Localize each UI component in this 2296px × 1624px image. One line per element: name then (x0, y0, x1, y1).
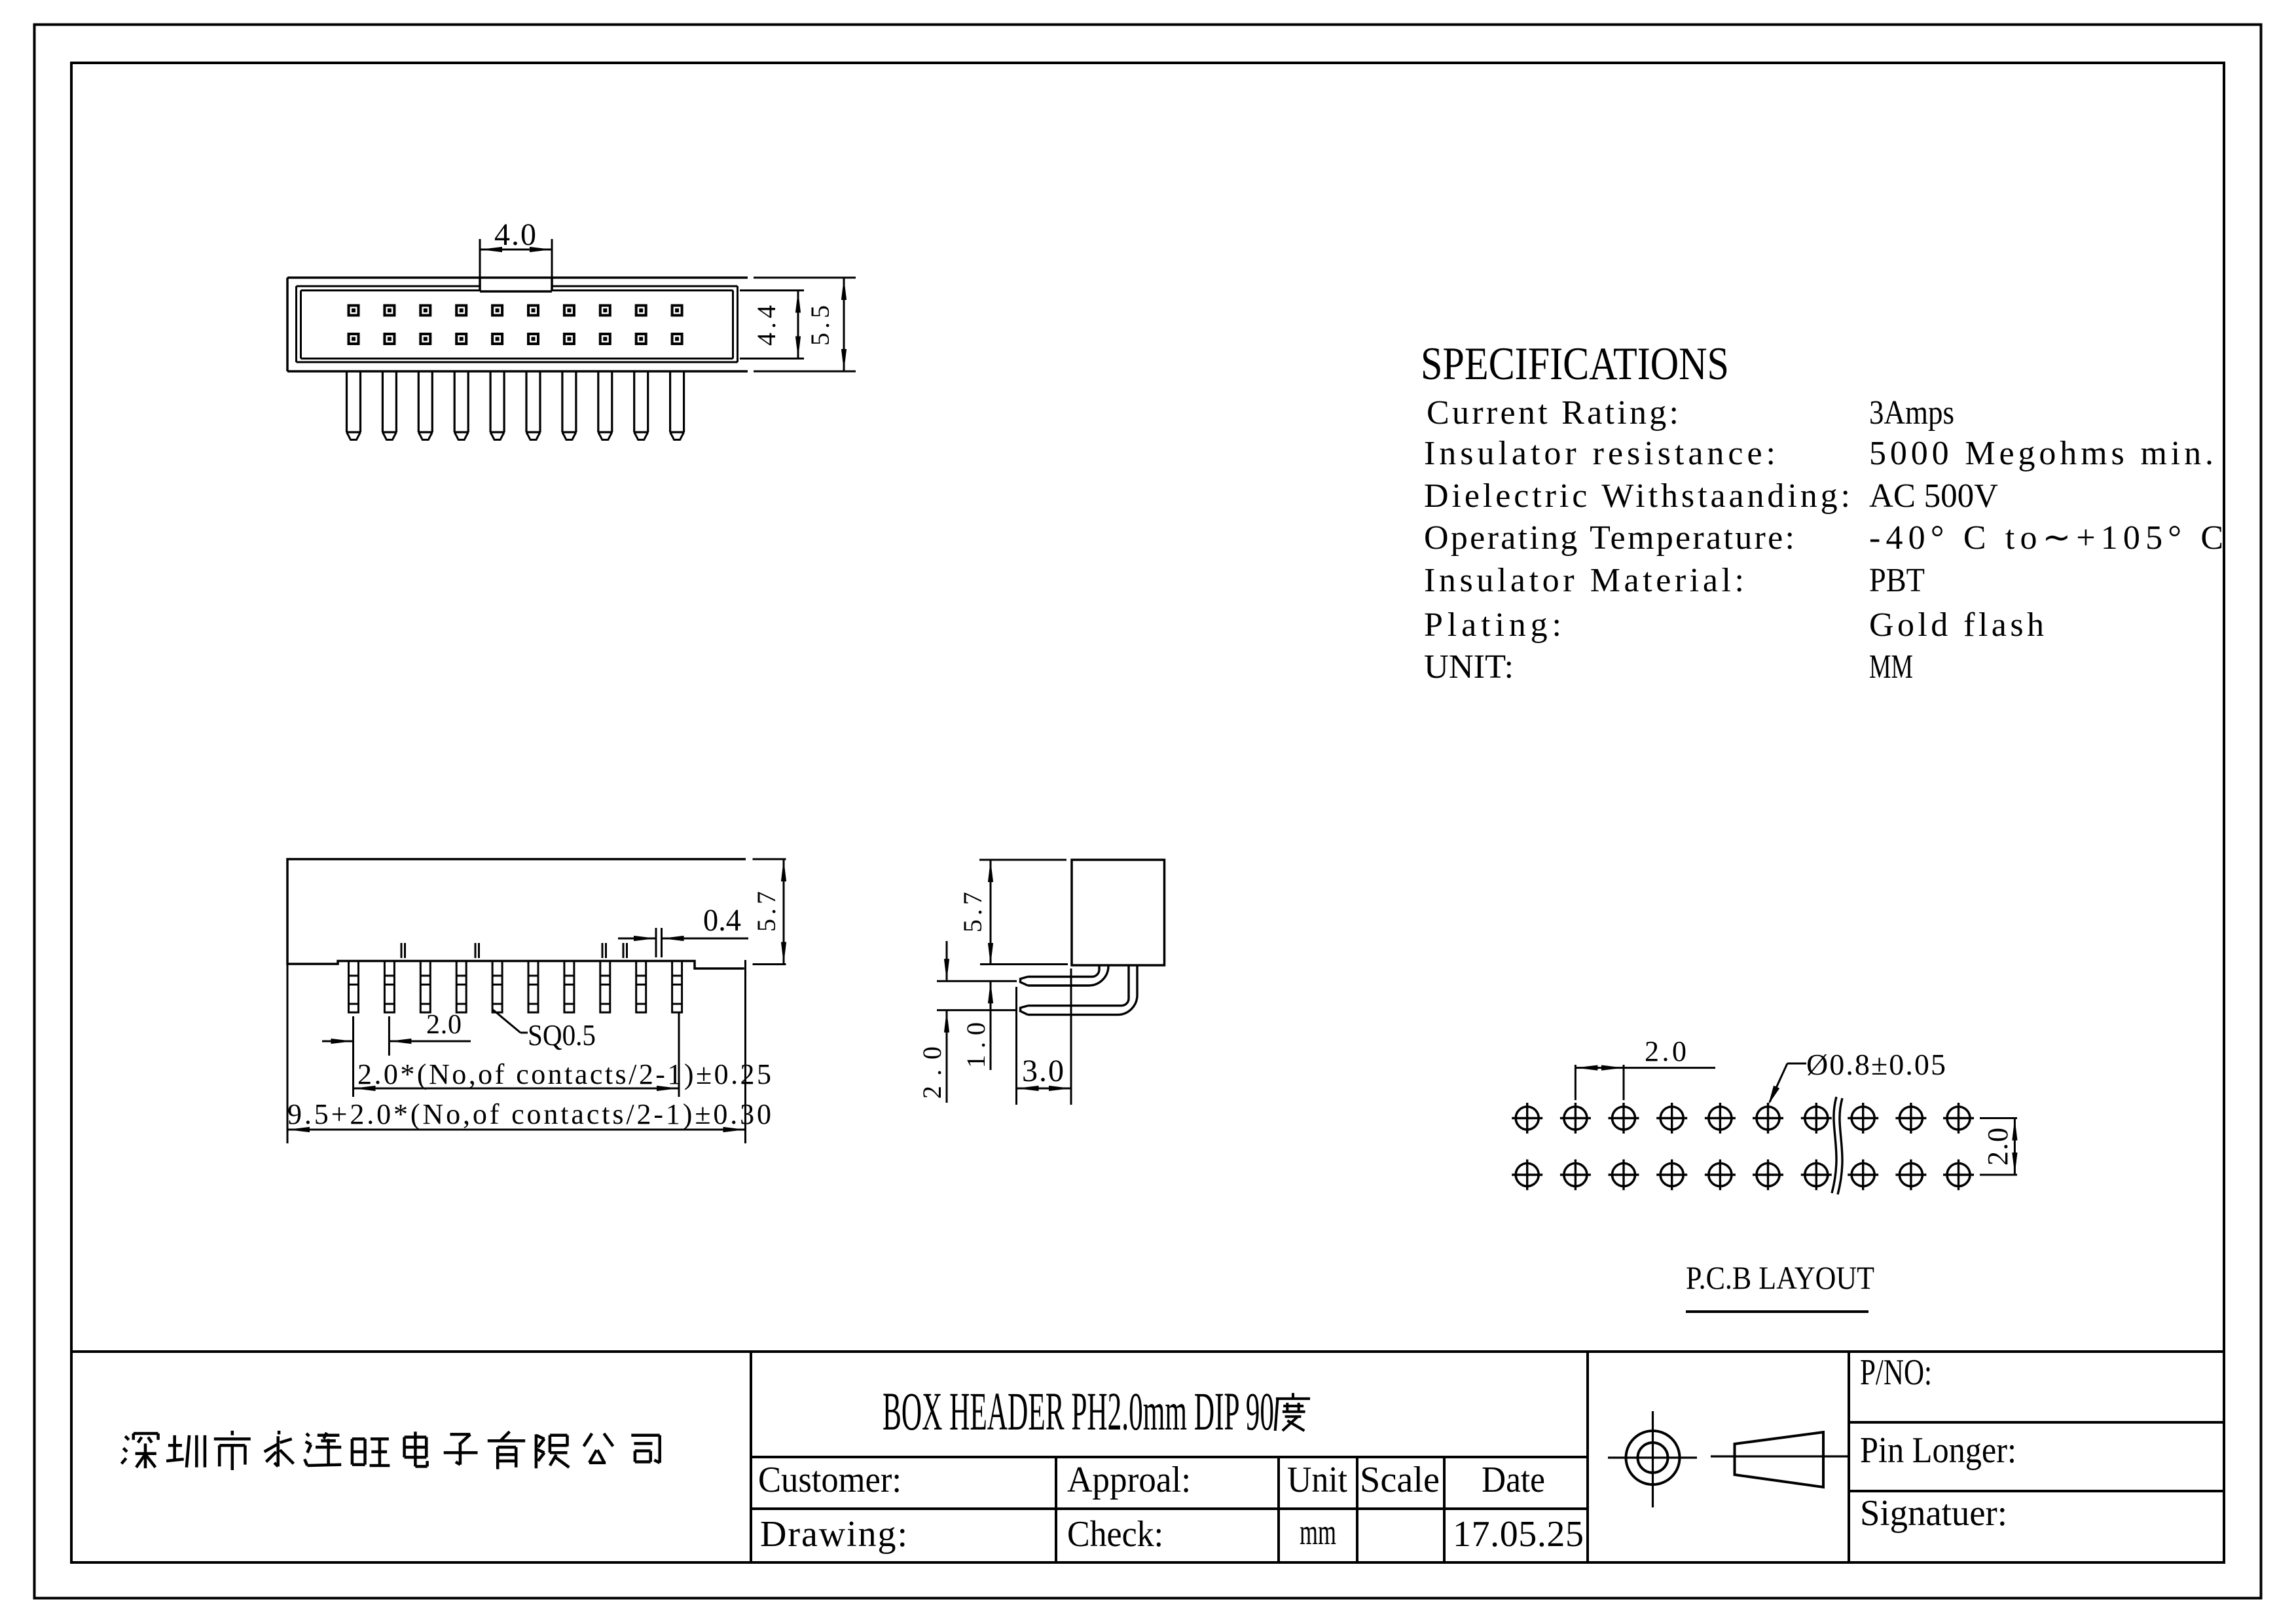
svg-text:BOX HEADER PH2.0mm DIP 90: BOX HEADER PH2.0mm DIP 90 (883, 1381, 1274, 1441)
svg-text:Check:: Check: (1067, 1514, 1163, 1555)
svg-text:4.4: 4.4 (752, 305, 781, 346)
svg-text:2.0*(No,of contacts/2-1)±0.25: 2.0*(No,of contacts/2-1)±0.25 (357, 1058, 771, 1090)
svg-text:-40° C to∼+105° C: -40° C to∼+105° C (1869, 519, 2223, 557)
svg-text:Current Rating:: Current Rating: (1427, 394, 1679, 432)
svg-text:17.05.25: 17.05.25 (1453, 1514, 1584, 1555)
svg-text:0.4: 0.4 (703, 903, 741, 938)
svg-text:1.0: 1.0 (961, 1022, 991, 1068)
svg-text:PBT: PBT (1869, 562, 1925, 599)
svg-text:5.7: 5.7 (958, 892, 987, 932)
svg-text:4.0: 4.0 (494, 217, 536, 252)
svg-text:MM: MM (1869, 648, 1913, 686)
svg-text:P.C.B LAYOUT: P.C.B LAYOUT (1686, 1259, 1874, 1296)
svg-text:Dielectric Withstaanding:: Dielectric Withstaanding: (1424, 477, 1850, 515)
svg-text:5000 Megohms min.: 5000 Megohms min. (1869, 435, 2214, 472)
svg-text:Drawing:: Drawing: (760, 1514, 907, 1555)
svg-text:UNIT:: UNIT: (1424, 648, 1514, 686)
svg-text:Pin Longer:: Pin Longer: (1860, 1430, 2016, 1471)
svg-text:SQ0.5: SQ0.5 (528, 1018, 596, 1052)
svg-text:5.5: 5.5 (805, 305, 835, 346)
svg-text:2.0: 2.0 (1982, 1128, 2014, 1166)
svg-text:Operating Temperature:: Operating Temperature: (1424, 519, 1795, 557)
svg-text:3.0: 3.0 (1022, 1054, 1064, 1088)
svg-text:AC 500V: AC 500V (1869, 477, 1998, 515)
svg-text:Insulator Material:: Insulator Material: (1424, 562, 1744, 599)
svg-text:mm: mm (1300, 1512, 1336, 1553)
svg-text:9.5+2.0*(No,of contacts/2-1)±0: 9.5+2.0*(No,of contacts/2-1)±0.30 (287, 1098, 771, 1130)
svg-text:2.0: 2.0 (1645, 1035, 1686, 1067)
svg-text:Approal:: Approal: (1067, 1460, 1191, 1500)
svg-text:Plating:: Plating: (1424, 606, 1561, 644)
svg-text:Gold flash: Gold flash (1869, 606, 2044, 644)
svg-text:Signatuer:: Signatuer: (1860, 1493, 2007, 1534)
svg-text:SPECIFICATIONS: SPECIFICATIONS (1421, 339, 1729, 390)
svg-text:Scale: Scale (1360, 1460, 1440, 1500)
svg-text:2.0: 2.0 (917, 1046, 947, 1099)
svg-text:P/NO:: P/NO: (1860, 1352, 1932, 1393)
svg-text:5.7: 5.7 (752, 891, 781, 932)
svg-text:Date: Date (1482, 1460, 1545, 1500)
svg-text:Ø0.8±0.05: Ø0.8±0.05 (1806, 1048, 1946, 1081)
svg-text:2.0: 2.0 (426, 1010, 462, 1040)
svg-text:3Amps: 3Amps (1869, 394, 1954, 432)
svg-text:Unit: Unit (1287, 1460, 1347, 1500)
svg-text:Insulator resistance:: Insulator resistance: (1424, 435, 1776, 472)
svg-text:Customer:: Customer: (758, 1460, 902, 1500)
